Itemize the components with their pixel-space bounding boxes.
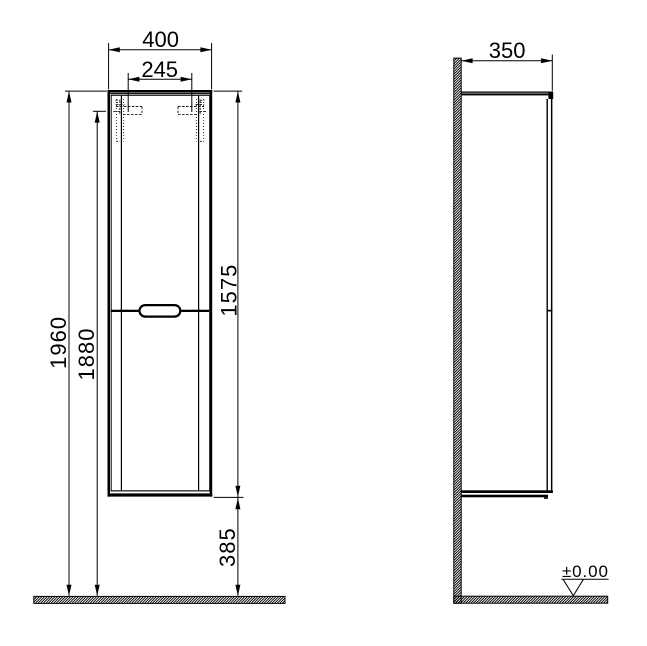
svg-text:1880: 1880 <box>74 328 99 381</box>
svg-text:245: 245 <box>141 57 178 82</box>
svg-text:350: 350 <box>489 38 526 63</box>
svg-text:1960: 1960 <box>46 316 71 369</box>
svg-text:385: 385 <box>215 527 240 567</box>
svg-text:±0.00: ±0.00 <box>562 562 609 581</box>
svg-text:400: 400 <box>142 27 179 52</box>
svg-text:1575: 1575 <box>216 264 241 317</box>
